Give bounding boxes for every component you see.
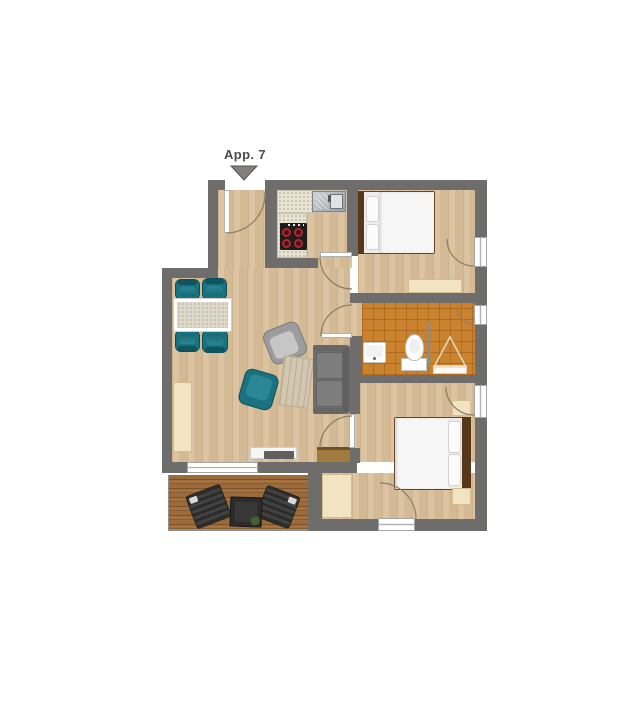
wall-kitchen-bottom — [265, 258, 318, 268]
window-living-terrace — [187, 462, 258, 473]
bed-2 — [394, 417, 471, 490]
kitchen-sink — [312, 191, 346, 212]
burner-icon — [294, 239, 303, 248]
plant-icon — [251, 516, 260, 525]
entrance-opening — [225, 180, 265, 190]
wall-top — [265, 180, 487, 190]
wall-bedroom-1-bottom — [350, 293, 475, 303]
lounger-pillow — [287, 496, 297, 504]
wall-left-upper — [208, 180, 218, 278]
threshold-bathroom-door — [350, 303, 362, 336]
sofa — [313, 345, 350, 414]
threshold-bedroom-1-door — [318, 256, 352, 268]
sofa-armrest — [313, 408, 344, 414]
wall-bedroom-2-left — [350, 383, 360, 414]
sofa-cushion — [316, 380, 343, 407]
wall-right — [475, 324, 487, 385]
bed-2-duvet — [395, 418, 448, 489]
drain-icon — [373, 357, 376, 360]
toilet-bowl — [409, 339, 420, 354]
bed-1-duvet — [379, 192, 434, 253]
bed-1-pillow — [366, 224, 379, 250]
burner-icon — [282, 228, 291, 237]
wall-right — [475, 418, 487, 531]
terrace-table — [229, 496, 262, 527]
bed-2-headboard — [462, 417, 471, 490]
window-bedroom-2-right — [474, 385, 487, 418]
sofa-cushion — [316, 352, 343, 379]
tv-screen — [264, 451, 294, 459]
burner-icon — [294, 228, 303, 237]
bed-1-pillow — [366, 196, 379, 222]
wall-terrace-right — [308, 463, 322, 531]
wall-hall-divider — [265, 190, 277, 268]
sink-basin — [330, 194, 343, 209]
window-bedroom-2-bottom — [378, 518, 415, 531]
wardrobe — [322, 474, 352, 518]
bathroom-sink — [363, 342, 386, 363]
dresser-bedroom-1 — [408, 279, 462, 293]
wall-bedroom-2-left — [350, 448, 360, 463]
entrance-door — [224, 190, 230, 233]
dining-table-top — [177, 302, 228, 328]
wall-bathroom-bottom — [350, 375, 475, 383]
basin — [366, 345, 383, 357]
wall-right — [475, 267, 487, 305]
wall-bottom-bedroom-2 — [415, 519, 487, 531]
stove — [280, 223, 307, 250]
entrance-marker-icon — [231, 166, 257, 180]
shower-mat — [433, 365, 467, 374]
window-bathroom — [474, 305, 487, 325]
sink-drainer — [315, 194, 328, 209]
nightstand — [452, 400, 471, 416]
faucet-icon — [328, 195, 331, 202]
sofa-backrest — [342, 347, 349, 412]
wall-left-lower — [162, 268, 172, 473]
wall-bedroom-1-left — [347, 190, 358, 256]
bathroom-door — [321, 333, 352, 338]
stove-knobs — [288, 224, 304, 226]
wood-bench — [317, 447, 352, 462]
dining-chair — [175, 330, 200, 352]
dining-table — [173, 298, 232, 332]
bed-2-pillow — [448, 454, 461, 486]
bed-2-pillow — [448, 421, 461, 453]
nightstand — [452, 488, 471, 505]
burner-icon — [282, 239, 291, 248]
bed-1 — [355, 191, 435, 254]
sofa-armrest — [313, 345, 344, 351]
dining-chair — [175, 279, 200, 300]
bedroom-2-door — [349, 414, 355, 448]
coffee-table — [278, 355, 314, 408]
toilet — [405, 334, 424, 361]
lounger-pillow — [189, 496, 199, 504]
wall-bottom-living-right — [258, 462, 357, 473]
apartment-label: App. 7 — [216, 147, 274, 162]
window-bedroom-1 — [474, 237, 487, 267]
dining-chair — [202, 278, 227, 300]
bedroom-1-door — [320, 252, 352, 257]
dining-chair — [202, 330, 228, 353]
floorplan-app-7: App. 7 — [0, 0, 640, 727]
wall-right — [475, 185, 487, 237]
sideboard — [173, 382, 192, 452]
